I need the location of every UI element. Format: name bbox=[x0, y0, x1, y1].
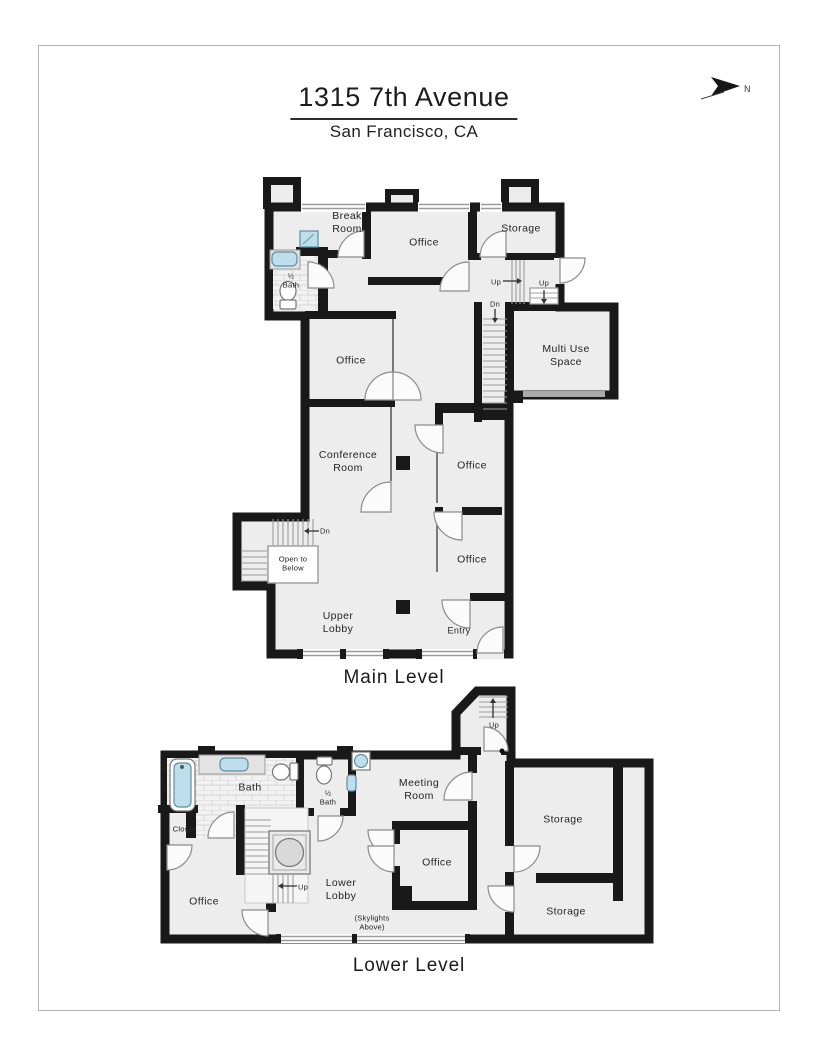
room-label-office-center: Office bbox=[457, 459, 487, 472]
sink-icon bbox=[220, 758, 248, 771]
column bbox=[396, 886, 412, 902]
column bbox=[396, 600, 410, 614]
stair-label-dn-2: Dn bbox=[320, 526, 330, 535]
corner-sink-icon bbox=[347, 775, 356, 791]
room-label-half-bath-lower: ½ Bath bbox=[320, 789, 336, 808]
round-basin-icon bbox=[355, 755, 368, 768]
column bbox=[396, 456, 410, 470]
room-label-closet: Closet bbox=[173, 824, 196, 833]
room-label-office-lower-center: Office bbox=[422, 856, 452, 869]
room-label-office-top: Office bbox=[409, 236, 439, 249]
stair-label-up-lower-1: Up bbox=[489, 720, 499, 729]
annotation-entry: Entry bbox=[447, 625, 470, 636]
floor-plan-sheet: 1315 7th Avenue San Francisco, CA N bbox=[0, 0, 816, 1056]
room-label-office-mid: Office bbox=[336, 354, 366, 367]
annotation-open-to-below: Open to Below bbox=[279, 555, 307, 574]
room-label-break-room: Break Room bbox=[332, 210, 362, 236]
stair-label-up-lower-2: Up bbox=[298, 882, 308, 891]
room-label-bath: Bath bbox=[238, 781, 261, 794]
door-side-exit bbox=[560, 258, 585, 283]
room-label-office-lower: Office bbox=[457, 553, 487, 566]
toilet-icon bbox=[273, 764, 290, 780]
sink-icon bbox=[272, 252, 297, 266]
stair-label-up-2: Up bbox=[539, 278, 549, 287]
stair-label-dn-1: Dn bbox=[490, 299, 500, 308]
room-label-upper-lobby: Upper Lobby bbox=[323, 610, 354, 636]
stair-label-up-1: Up bbox=[491, 277, 501, 286]
room-label-half-bath: ½ Bath bbox=[283, 272, 299, 291]
lower-level-caption: Lower Level bbox=[353, 955, 465, 977]
spa-skylight-feature bbox=[269, 831, 310, 874]
room-label-storage-1: Storage bbox=[543, 813, 583, 826]
main-level-caption: Main Level bbox=[344, 667, 445, 689]
room-label-lower-lobby: Lower Lobby bbox=[326, 877, 357, 903]
room-label-storage-2: Storage bbox=[546, 905, 586, 918]
room-label-meeting-room: Meeting Room bbox=[399, 777, 439, 803]
room-label-storage: Storage bbox=[501, 222, 541, 235]
lower-windows bbox=[276, 934, 470, 943]
floor-plan-drawing bbox=[0, 0, 816, 1056]
toilet-icon bbox=[317, 757, 332, 765]
room-label-office-left: Office bbox=[189, 895, 219, 908]
room-label-conference: Conference Room bbox=[319, 449, 377, 475]
annotation-skylights: (Skylights Above) bbox=[355, 914, 390, 933]
north-arrow-icon bbox=[701, 77, 740, 99]
room-label-multi-use: Multi Use Space bbox=[542, 343, 589, 369]
